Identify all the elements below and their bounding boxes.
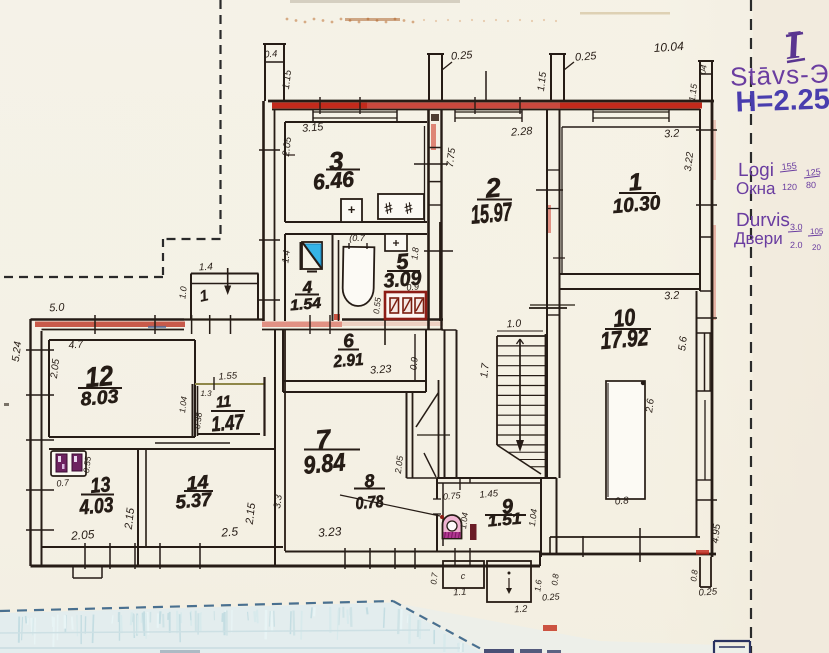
svg-text:1.0: 1.0 <box>506 318 521 331</box>
svg-text:0.9: 0.9 <box>408 356 421 371</box>
svg-text:1.4: 1.4 <box>199 262 214 274</box>
svg-text:1.7: 1.7 <box>478 362 492 379</box>
svg-text:2.28: 2.28 <box>510 125 534 139</box>
svg-text:5.6: 5.6 <box>676 336 690 352</box>
svg-text:5.24: 5.24 <box>10 341 24 363</box>
svg-text:0.25: 0.25 <box>698 586 718 598</box>
svg-text:5.0: 5.0 <box>49 302 66 315</box>
svg-text:120: 120 <box>782 182 797 192</box>
svg-text:1.04: 1.04 <box>458 512 470 530</box>
svg-text:0.25: 0.25 <box>542 591 561 602</box>
svg-text:1.8: 1.8 <box>409 247 420 261</box>
svg-text:0.8: 0.8 <box>688 569 699 582</box>
svg-text:4.7: 4.7 <box>68 338 85 351</box>
svg-text:Двери: Двери <box>734 229 783 248</box>
svg-text:0.4: 0.4 <box>264 49 278 61</box>
svg-text:20: 20 <box>812 243 821 252</box>
svg-text:0.7: 0.7 <box>56 477 70 488</box>
svg-text:04: 04 <box>697 64 709 75</box>
svg-text:(0.7: (0.7 <box>349 233 366 243</box>
svg-text:2.6: 2.6 <box>644 398 657 415</box>
svg-text:3.2: 3.2 <box>664 289 680 302</box>
svg-text:1.6: 1.6 <box>532 579 543 592</box>
svg-text:1.04: 1.04 <box>527 508 539 527</box>
svg-text:3.0: 3.0 <box>790 222 803 232</box>
svg-text:2.0: 2.0 <box>790 240 803 250</box>
svg-text:1.47: 1.47 <box>210 411 245 437</box>
svg-text:1.54: 1.54 <box>289 295 322 315</box>
svg-text:10.04: 10.04 <box>653 39 684 55</box>
svg-text:0.75: 0.75 <box>443 490 462 502</box>
svg-text:3.3: 3.3 <box>272 494 285 510</box>
svg-text:1.45: 1.45 <box>479 488 499 501</box>
svg-text:0.8: 0.8 <box>549 573 560 586</box>
svg-text:9.84: 9.84 <box>302 448 346 480</box>
svg-text:0.7: 0.7 <box>428 572 439 585</box>
svg-text:c: c <box>461 571 466 581</box>
svg-text:0.38: 0.38 <box>192 412 204 430</box>
svg-text:Durvis: Durvis <box>736 210 790 231</box>
svg-text:15.97: 15.97 <box>469 196 513 230</box>
svg-text:1.04: 1.04 <box>177 396 189 414</box>
svg-text:1.51: 1.51 <box>487 511 522 531</box>
svg-text:2.5: 2.5 <box>220 524 239 539</box>
svg-text:0.8: 0.8 <box>614 495 629 507</box>
svg-text:3.23: 3.23 <box>370 363 393 377</box>
svg-text:0.55: 0.55 <box>371 297 383 315</box>
svg-text:3.23: 3.23 <box>318 524 343 540</box>
svg-text:1.55: 1.55 <box>218 370 238 382</box>
svg-text:+: + <box>348 202 356 217</box>
svg-text:H=2.25: H=2.25 <box>735 83 829 118</box>
svg-text:3.2: 3.2 <box>664 127 680 140</box>
svg-text:0.55: 0.55 <box>81 456 93 474</box>
svg-text:0.25: 0.25 <box>575 50 598 64</box>
svg-text:6.46: 6.46 <box>312 166 356 195</box>
svg-text:1.0: 1.0 <box>177 286 188 300</box>
svg-text:0.78: 0.78 <box>355 492 385 513</box>
svg-text:2.91: 2.91 <box>332 350 364 372</box>
svg-text:1.2: 1.2 <box>514 604 528 616</box>
svg-text:8.03: 8.03 <box>80 386 120 410</box>
svg-text:Logi: Logi <box>738 160 774 181</box>
svg-text:17.92: 17.92 <box>599 324 650 355</box>
svg-text:10.30: 10.30 <box>612 192 662 218</box>
svg-text:5.37: 5.37 <box>175 489 214 513</box>
svg-text:0.9: 0.9 <box>406 281 419 292</box>
svg-text:4.03: 4.03 <box>78 494 115 520</box>
svg-text:2.05: 2.05 <box>70 527 96 543</box>
svg-text:+: + <box>392 236 399 250</box>
svg-text:1.1: 1.1 <box>453 587 467 599</box>
svg-text:11: 11 <box>215 393 232 411</box>
svg-text:0.25: 0.25 <box>451 49 474 63</box>
svg-text:3.15: 3.15 <box>302 121 325 135</box>
svg-text:Окна: Окна <box>736 179 776 198</box>
svg-text:80: 80 <box>806 180 816 190</box>
svg-text:1.3: 1.3 <box>200 389 212 398</box>
svg-text:1.4: 1.4 <box>280 249 293 263</box>
